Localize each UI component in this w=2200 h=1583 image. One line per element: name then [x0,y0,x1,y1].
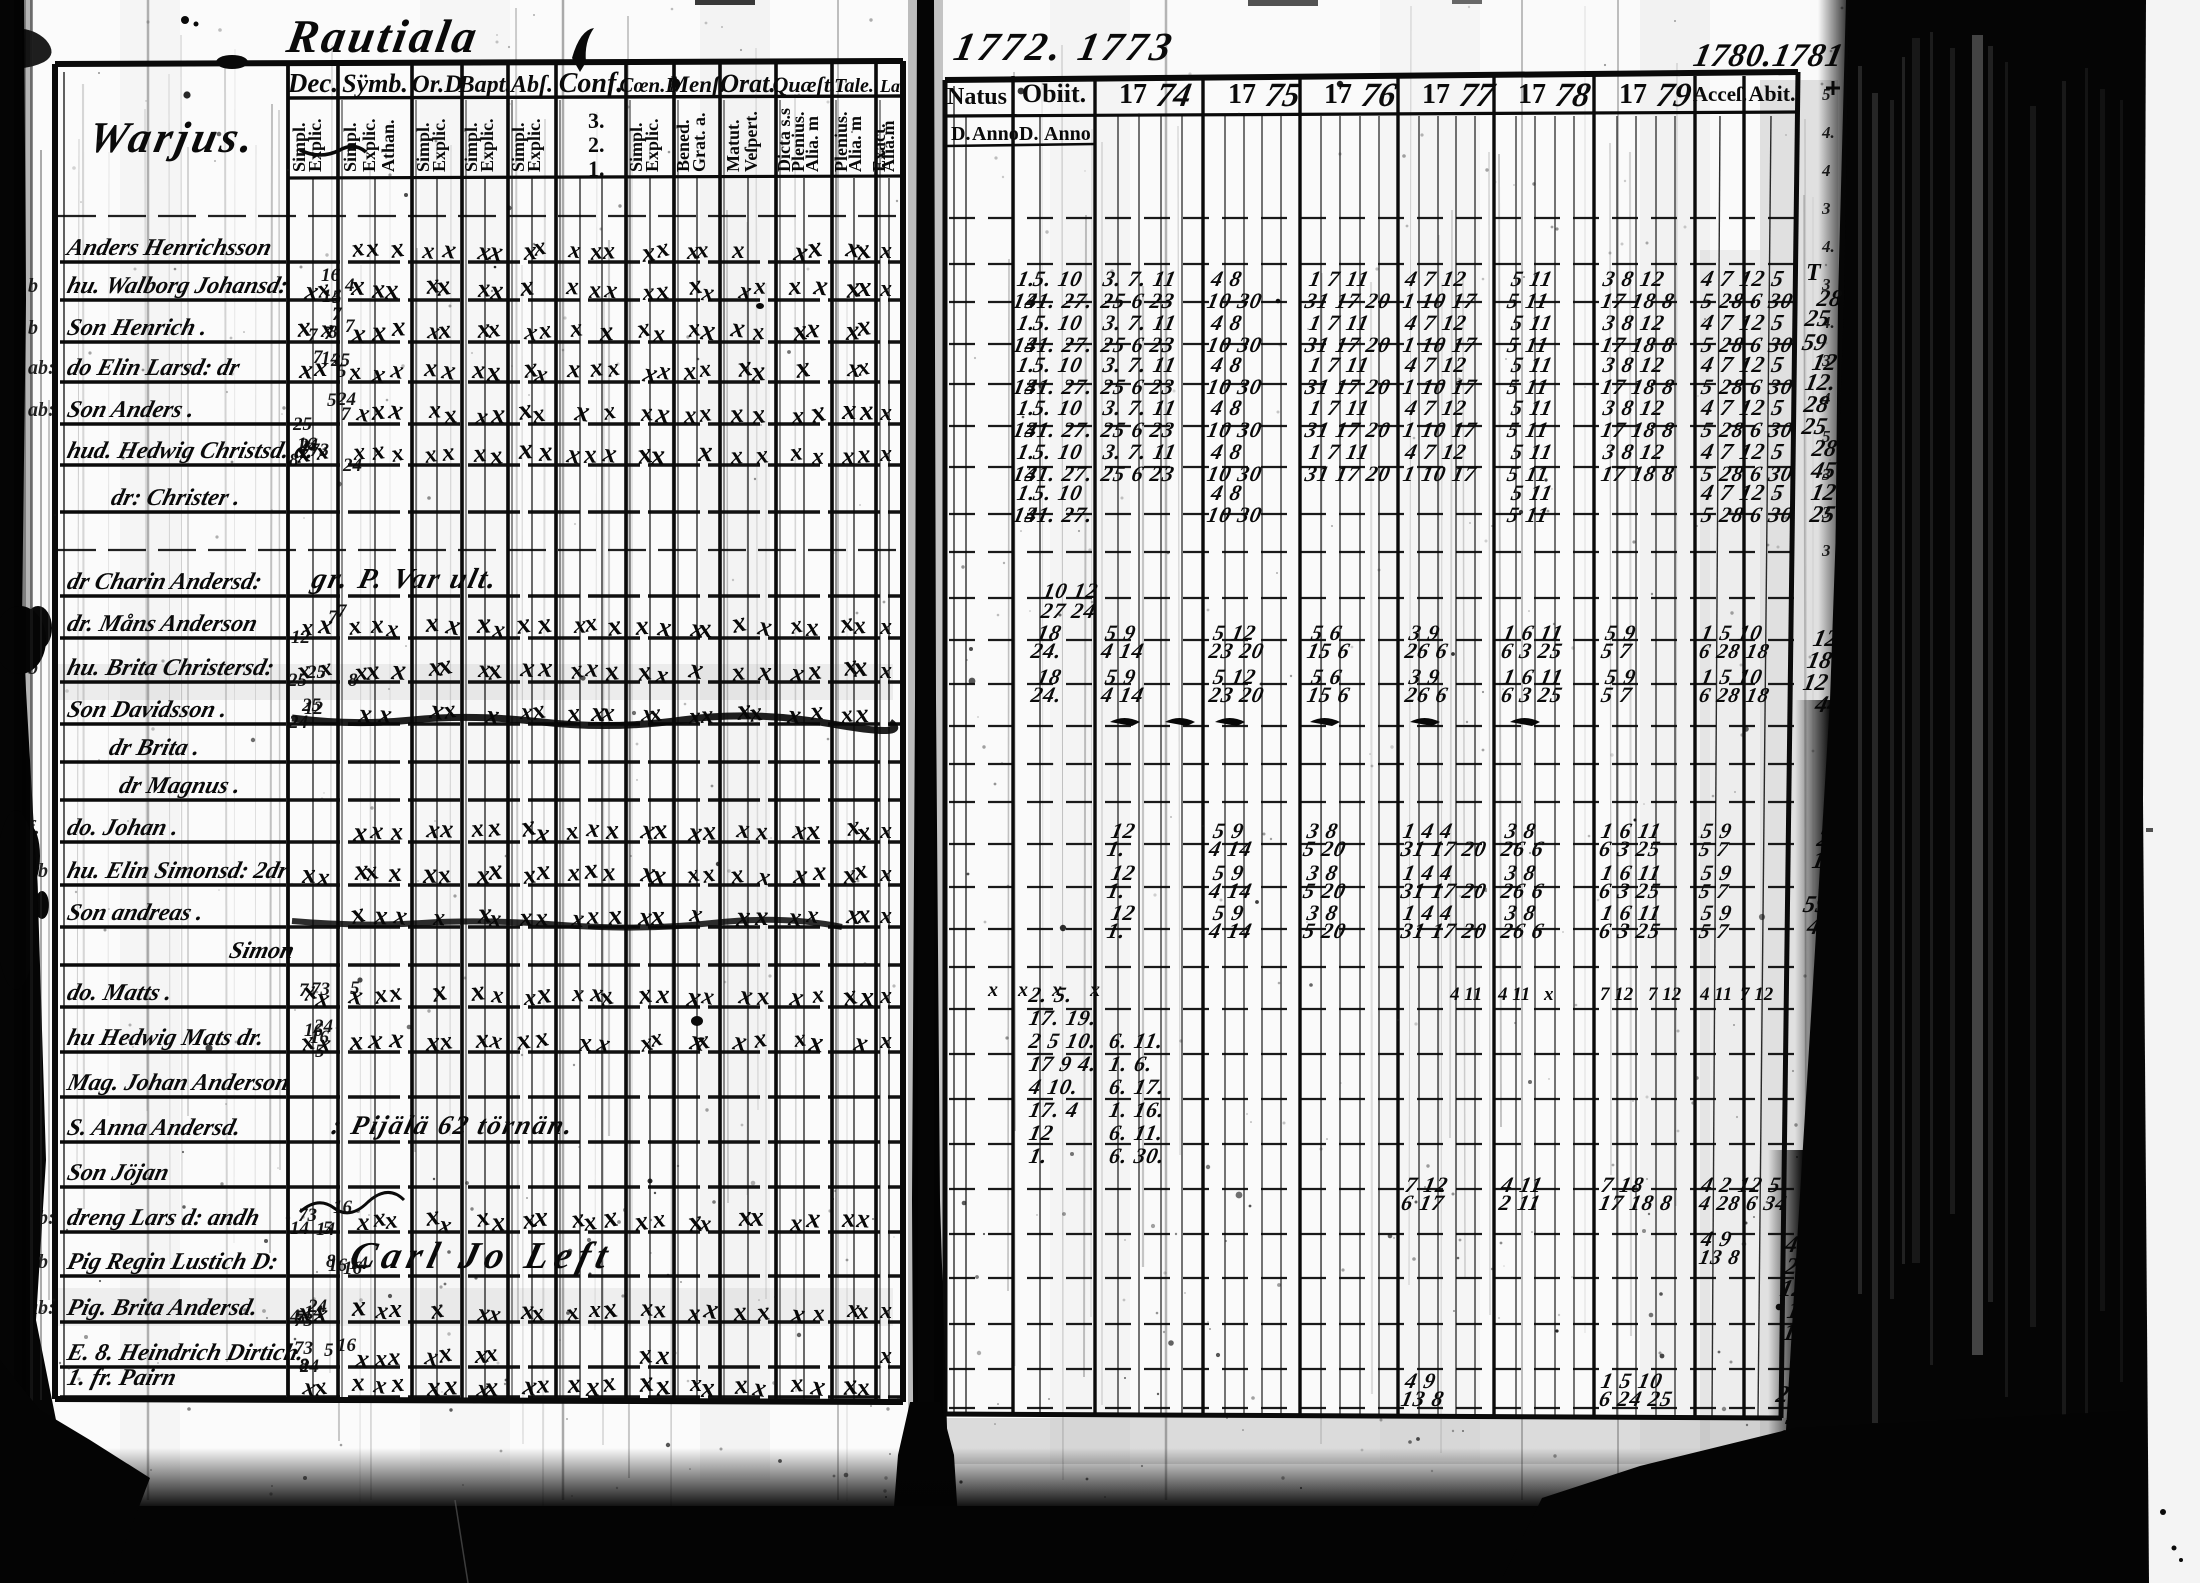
svg-text:x: x [652,1296,667,1324]
svg-text:2 5 10.: 2 5 10. [1026,1028,1100,1053]
svg-text:x: x [571,981,585,1007]
svg-text:7: 7 [299,980,310,1001]
svg-text:7: 7 [328,607,339,628]
svg-text:do. Johan .: do. Johan . [65,814,182,841]
svg-text:x: x [698,1211,712,1238]
svg-text:x: x [473,403,489,431]
svg-text:x: x [374,1346,387,1372]
svg-text:x: x [879,276,892,302]
svg-text:x: x [373,1297,389,1325]
svg-text:x: x [856,271,872,303]
svg-text:x: x [805,1203,822,1235]
svg-text:x: x [587,277,601,304]
svg-text:x: x [566,859,581,887]
svg-text:x: x [423,353,438,382]
svg-text:x: x [390,311,407,343]
svg-text:Explic.: Explic. [642,118,662,172]
svg-text:Explic.: Explic. [429,118,449,172]
svg-text:5 11: 5 11 [1505,502,1552,527]
svg-text:x: x [601,237,616,265]
svg-text:x: x [537,436,554,468]
svg-text:78: 78 [1553,76,1594,114]
svg-text:2 11: 2 11 [1496,1190,1544,1215]
svg-text:x: x [523,985,536,1011]
svg-text:x: x [687,817,704,849]
svg-text:dr Magnus .: dr Magnus . [117,772,244,799]
svg-text:8: 8 [348,670,358,691]
svg-text:x: x [879,658,892,684]
svg-text:16: 16 [343,1258,363,1279]
svg-text:x: x [490,1206,506,1237]
svg-text:x: x [757,656,773,686]
svg-text:8: 8 [326,1251,336,1272]
svg-text:Abit.: Abit. [1748,81,1795,106]
svg-text:x: x [490,616,506,644]
svg-text:x: x [855,1203,871,1234]
svg-text:7: 7 [324,323,335,344]
svg-text:dr Charin Andersd:: dr Charin Andersd: [65,568,265,595]
svg-text:Conf.: Conf. [559,68,624,99]
svg-text:x: x [651,814,668,846]
svg-text:x: x [604,814,620,845]
svg-text:x: x [352,817,368,849]
svg-text:1.: 1. [588,156,605,181]
svg-text:x: x [858,395,875,427]
svg-text:x: x [804,815,822,847]
svg-text:x: x [369,610,384,639]
svg-text:x: x [841,443,855,470]
svg-text:4 11: 4 11 [1699,984,1732,1005]
svg-text:x: x [421,238,436,265]
svg-text:gr. P. Var ult.: gr. P. Var ult. [307,563,502,595]
svg-text:x: x [752,274,766,300]
svg-text:x: x [731,1296,748,1327]
svg-text:x: x [316,864,330,891]
svg-text:x: x [385,616,400,643]
svg-text:Acceſ.: Acceſ. [1693,82,1747,106]
svg-text:x: x [578,1028,592,1057]
svg-text:dreng Lars d: andh: dreng Lars d: andh [65,1204,263,1231]
svg-text:x: x [1089,979,1100,1001]
svg-text:x: x [534,855,552,887]
svg-text:1 10 17: 1 10 17 [1401,461,1479,486]
svg-text:Bapt.: Bapt. [458,72,512,98]
svg-text:hu. Brita Christersd:: hu. Brita Christersd: [65,654,278,681]
svg-text:6. 11.: 6. 11. [1107,1028,1167,1053]
svg-text:16: 16 [310,1027,330,1048]
svg-text:5 20: 5 20 [1301,836,1349,861]
svg-text:D.: D. [1019,123,1038,145]
svg-text:x: x [584,813,600,843]
svg-text:E. 8. Heindrich Dirtich.: E. 8. Heindrich Dirtich. [64,1339,308,1366]
svg-text:x: x [805,313,821,343]
svg-text:x: x [750,319,765,346]
svg-text:x: x [855,899,871,929]
svg-text:x: x [518,652,536,684]
svg-text:x: x [473,1023,490,1054]
svg-text:x: x [489,982,504,1009]
svg-text:x: x [516,433,534,466]
svg-text:Explic.: Explic. [524,118,544,172]
svg-text:x: x [812,856,827,886]
svg-text:Pig Regin Lustich D:: Pig Regin Lustich D: [64,1248,282,1275]
svg-text:75: 75 [1263,76,1304,114]
svg-text:17 9 4.: 17 9 4. [1027,1051,1100,1076]
svg-text:x: x [787,902,803,932]
svg-text:Explic.: Explic. [477,118,497,172]
svg-text:x: x [423,607,440,638]
svg-text:73: 73 [310,440,329,461]
svg-text:x: x [754,818,769,846]
svg-text:Natus: Natus [947,84,1007,110]
svg-text:6 28 18: 6 28 18 [1697,683,1772,707]
svg-text:7 12: 7 12 [1600,984,1634,1005]
svg-text:1. 6.: 1. 6. [1107,1051,1156,1076]
svg-text:x: x [879,441,892,467]
svg-text:x: x [987,979,998,1001]
svg-text:x: x [390,654,408,687]
svg-text:hu. Elin Simonsd: 2dr: hu. Elin Simonsd: 2dr [65,857,292,884]
svg-text:1. 16.: 1. 16. [1107,1097,1168,1122]
svg-text:x: x [534,818,551,850]
svg-text:x: x [633,610,650,641]
svg-text:73: 73 [294,1338,313,1359]
svg-text:Obiit.: Obiit. [1022,79,1086,108]
svg-text:D.: D. [951,123,970,145]
svg-text:x: x [348,1025,364,1056]
svg-text:6 3 25: 6 3 25 [1499,682,1565,707]
svg-text:Abſ.: Abſ. [509,72,553,98]
svg-text:x: x [879,614,892,640]
svg-text:24: 24 [342,455,362,476]
svg-text:x: x [655,1340,670,1370]
svg-text:26 6: 26 6 [1402,682,1451,707]
svg-text:6 17: 6 17 [1399,1190,1447,1215]
svg-text:Or.D: Or.D [412,71,463,98]
svg-text:1. fr. Pairn: 1. fr. Pairn [65,1364,180,1391]
svg-text:x: x [597,316,614,348]
svg-text:x: x [681,356,697,386]
svg-text:17: 17 [1422,79,1450,110]
svg-text:x: x [1051,979,1062,1001]
svg-text:73: 73 [298,1205,317,1226]
svg-text:Sÿmb.: Sÿmb. [342,69,408,98]
svg-text:24.: 24. [1028,638,1065,663]
svg-text:17 18 8: 17 18 8 [1597,1190,1675,1215]
svg-text:17: 17 [1518,79,1546,110]
svg-text:31. 27.: 31. 27. [1022,502,1096,527]
svg-text:x: x [749,1202,765,1233]
svg-text:x: x [855,439,871,469]
svg-text:7: 7 [332,304,343,325]
svg-text:x: x [879,400,892,426]
svg-text:Pig. Brita Andersd.: Pig. Brita Andersd. [64,1294,261,1321]
svg-text:73: 73 [311,979,330,1000]
svg-text:16: 16 [321,265,341,286]
svg-text:x: x [811,444,824,470]
svg-text:x: x [840,1203,856,1233]
svg-text:x: x [565,273,579,300]
svg-text:x: x [537,652,554,684]
svg-text:Carl Jo Left: Carl Jo Left [346,1236,618,1277]
svg-text:x: x [471,355,486,384]
svg-text:4 11: 4 11 [1449,984,1482,1005]
svg-text:x: x [388,1294,402,1323]
svg-text:x: x [600,857,616,887]
svg-text:x: x [298,354,314,385]
svg-text:hu. Walborg Johansd:: hu. Walborg Johansd: [65,272,291,299]
svg-text:x: x [383,275,399,307]
svg-text:x: x [566,237,582,264]
svg-text:x: x [442,1370,459,1402]
svg-text:Warjus.: Warjus. [84,112,262,161]
svg-text:x: x [788,1368,804,1398]
svg-text:dr: Christer .: dr: Christer . [109,484,244,511]
svg-text:12: 12 [291,627,311,648]
svg-text:7 12: 7 12 [1740,984,1774,1005]
svg-text:x: x [1017,979,1028,1001]
svg-text:5 7: 5 7 [1697,919,1732,943]
svg-text:x: x [469,815,485,843]
svg-text:25: 25 [306,662,327,683]
svg-text:x: x [427,396,442,424]
svg-text:x: x [879,861,892,887]
svg-text:10 30: 10 30 [1205,502,1265,527]
svg-text:6. 11.: 6. 11. [1107,1120,1167,1145]
svg-text:do Elin Larsd: dr: do Elin Larsd: dr [65,354,243,381]
svg-text:25 6 23: 25 6 23 [1098,461,1177,486]
svg-text:Son Davidsson .: Son Davidsson . [65,696,231,723]
svg-text:Son andreas .: Son andreas . [65,899,207,926]
svg-text:Matut.: Matut. [723,120,743,173]
svg-text:x: x [701,815,717,846]
svg-text:Alia.m: Alia.m [878,120,898,172]
svg-text:x: x [535,1369,550,1399]
svg-text:24.: 24. [1028,682,1065,707]
svg-text:x: x [734,814,750,844]
svg-text:16: 16 [333,1197,353,1218]
svg-text:23 20: 23 20 [1206,638,1267,663]
svg-text:23 20: 23 20 [1206,682,1267,707]
svg-text:Mag. Johan Anderson: Mag. Johan Anderson [64,1069,293,1096]
svg-text:5 28 6 30: 5 28 6 30 [1699,502,1796,527]
svg-text:Grat. a.: Grat. a. [689,113,709,172]
svg-text:7: 7 [341,404,352,425]
svg-text:24: 24 [307,1296,327,1317]
svg-text:7 12: 7 12 [1648,984,1682,1005]
svg-text:4: 4 [344,275,355,296]
svg-text:x: x [301,859,317,890]
svg-text:dr Brita .: dr Brita . [107,734,204,761]
svg-text:x: x [651,321,665,348]
svg-text:x: x [879,1343,892,1369]
svg-text:13 8: 13 8 [1697,1245,1743,1269]
svg-text:Anders Henrichsson: Anders Henrichsson [63,234,275,261]
svg-text:x: x [790,402,805,430]
svg-text:24: 24 [288,712,308,733]
svg-text:x: x [841,394,857,426]
svg-text:7: 7 [345,316,356,337]
svg-text:S. Anna Andersd.: S. Anna Andersd. [65,1114,245,1141]
svg-text:x: x [695,237,710,264]
svg-text:4 14: 4 14 [1206,918,1255,943]
svg-text:hud. Hedwig Christsd. d:: hud. Hedwig Christsd. d: [65,437,319,464]
svg-text:Son Anders .: Son Anders . [65,396,198,423]
svg-text:5 20: 5 20 [1301,918,1349,943]
svg-text:x: x [811,1301,825,1327]
svg-text:x: x [471,438,487,468]
svg-text:x: x [371,316,387,348]
svg-text:Veſpert.: Veſpert. [741,111,761,172]
svg-text:x: x [350,1367,365,1397]
svg-text:13 8: 13 8 [1399,1386,1447,1411]
svg-text:17. 19.: 17. 19. [1027,1005,1100,1030]
svg-text:x: x [791,859,809,891]
svg-text:6 3 25: 6 3 25 [1597,836,1663,861]
svg-text:x: x [639,1295,653,1322]
svg-text:x: x [879,903,892,929]
svg-text:x: x [735,901,751,933]
svg-text:17: 17 [1619,79,1647,110]
svg-text:x: x [518,902,533,932]
svg-text:x: x [731,237,745,264]
svg-text:Explic.: Explic. [305,118,325,172]
svg-text:x: x [366,1024,384,1056]
svg-text:6 3 25: 6 3 25 [1499,638,1565,663]
svg-text:5 7: 5 7 [1697,837,1732,861]
svg-text:4 11: 4 11 [1497,984,1530,1005]
svg-text:x: x [655,979,670,1009]
svg-text:x: x [389,818,404,846]
svg-text:x: x [855,1374,871,1402]
svg-text:La: La [879,76,900,96]
svg-text:x: x [687,1300,701,1327]
svg-text:x: x [533,1202,549,1233]
svg-text:79: 79 [1654,76,1695,114]
svg-text:26 6: 26 6 [1498,918,1547,943]
svg-text:do. Matts .: do. Matts . [65,979,176,1006]
svg-text:14: 14 [321,348,340,369]
svg-text:x: x [855,1298,870,1325]
svg-text:17 18 8: 17 18 8 [1599,461,1677,486]
svg-text:31 17 20: 31 17 20 [1302,461,1393,486]
svg-text:26 6: 26 6 [1402,638,1451,663]
svg-text:x: x [729,442,744,470]
svg-text:x: x [565,1368,582,1399]
svg-text:x: x [534,904,549,932]
svg-text:x: x [476,273,491,303]
svg-text:4: 4 [289,1306,300,1327]
svg-text:x: x [699,279,715,307]
svg-text:Son Henrich .: Son Henrich . [65,314,211,341]
svg-text:x: x [439,814,454,844]
svg-text:x: x [697,436,713,468]
svg-text:4 14: 4 14 [1206,836,1255,861]
svg-text:25: 25 [292,414,313,435]
svg-text:x: x [356,1209,370,1236]
svg-text:x: x [879,983,892,1009]
svg-text:x: x [649,440,666,473]
svg-text:4 10.: 4 10. [1026,1074,1081,1099]
svg-text:: Pijälä 62 törnän.: : Pijälä 62 törnän. [329,1110,578,1140]
svg-text:3.: 3. [588,108,605,133]
svg-text:6 28 18: 6 28 18 [1697,639,1772,663]
svg-text:x: x [490,399,506,430]
svg-text:x: x [879,1298,892,1324]
svg-text:Quæſt.: Quæſt. [773,72,836,97]
svg-text:x: x [696,613,713,644]
svg-text:15 6: 15 6 [1305,682,1353,707]
svg-text:5: 5 [324,1340,334,1361]
svg-text:x: x [432,905,445,931]
svg-text:x: x [485,357,501,389]
svg-text:x: x [754,901,769,931]
svg-text:x: x [684,981,702,1014]
svg-text:31 17 20: 31 17 20 [1398,836,1489,861]
svg-text:25: 25 [287,670,308,691]
svg-text:7: 7 [308,325,319,346]
svg-text:16: 16 [337,1335,357,1356]
svg-text:x: x [879,818,892,844]
svg-text:x: x [804,613,819,642]
svg-text:6. 17.: 6. 17. [1107,1074,1168,1099]
svg-text:31 17 20: 31 17 20 [1398,918,1489,943]
svg-text:x: x [641,279,655,306]
svg-text:24: 24 [299,1356,319,1377]
svg-text:x: x [582,440,597,469]
svg-text:x: x [789,1210,803,1237]
svg-text:74: 74 [1154,76,1195,114]
svg-text:x: x [387,1344,401,1371]
svg-text:Menſ.: Menſ. [668,72,726,97]
svg-text:x: x [425,1372,441,1404]
svg-text:7: 7 [337,601,348,622]
svg-text:dr. Måns Anderson: dr. Måns Anderson [65,610,261,637]
svg-text:x: x [649,859,667,892]
svg-text:x: x [749,356,766,388]
svg-text:x: x [475,608,492,641]
svg-text:x: x [700,1373,716,1404]
svg-text:Simon: Simon [227,937,298,964]
svg-text:x: x [387,1023,405,1055]
svg-text:hu Hedwig Mats dr.: hu Hedwig Mats dr. [65,1024,268,1051]
svg-text:Dec.: Dec. [287,68,338,98]
svg-text:4 14: 4 14 [1098,682,1147,707]
svg-text:2. 5.: 2. 5. [1026,982,1076,1007]
svg-text:Son Jöjan: Son Jöjan [65,1159,172,1186]
svg-text:26 6: 26 6 [1498,836,1547,861]
svg-text:Anno: Anno [1044,123,1091,145]
svg-text:x: x [754,981,770,1011]
svg-text:6 3 25: 6 3 25 [1597,918,1663,943]
svg-text:x: x [483,1372,499,1402]
svg-text:17: 17 [1119,79,1147,110]
svg-text:17: 17 [1228,79,1256,110]
svg-text:x: x [584,653,600,683]
svg-text:x: x [859,982,874,1013]
svg-text:5: 5 [327,390,337,411]
svg-text:6 24 25: 6 24 25 [1597,1386,1675,1411]
svg-text:15 6: 15 6 [1305,638,1353,663]
svg-text:x: x [1543,984,1554,1005]
svg-text:2.: 2. [588,132,605,157]
svg-text:x: x [851,612,867,640]
svg-text:5 7: 5 7 [1599,682,1635,707]
svg-text:Tale.: Tale. [834,75,874,97]
svg-text:x: x [350,1290,367,1323]
svg-text:Orat.: Orat. [720,69,776,98]
svg-text:Athan.: Athan. [378,119,398,172]
